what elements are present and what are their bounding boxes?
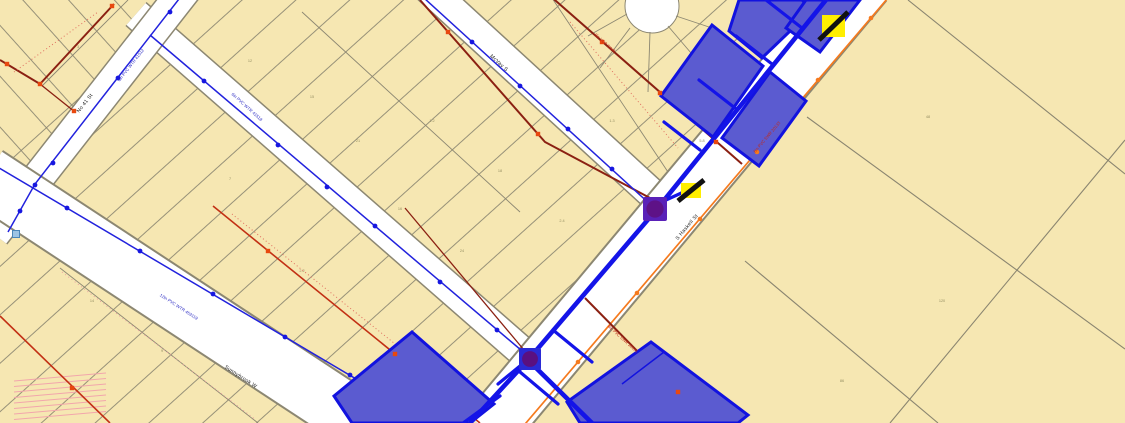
parcel-number: 24 xyxy=(460,249,464,253)
parcel-number: 16 xyxy=(398,207,402,211)
water-node[interactable] xyxy=(518,84,523,89)
water-node[interactable] xyxy=(610,167,615,172)
parcel-number: 15 xyxy=(310,95,314,99)
sewer-node[interactable] xyxy=(714,140,718,144)
water-node[interactable] xyxy=(138,249,143,254)
sewer-node[interactable] xyxy=(393,352,397,356)
water-node[interactable] xyxy=(65,206,70,211)
water-node[interactable] xyxy=(168,10,173,15)
map-canvas[interactable]: No 41 StMcVay SS Haskell StSunnybrook W1… xyxy=(0,0,1125,423)
parcel-number: 5.8 xyxy=(699,139,704,143)
flow-arrow-icon[interactable] xyxy=(635,291,640,296)
water-node[interactable] xyxy=(470,40,475,45)
sewer-node[interactable] xyxy=(70,386,74,390)
water-node[interactable] xyxy=(566,127,571,132)
sewer-node[interactable] xyxy=(5,62,9,66)
parcel-number: 14 xyxy=(90,299,94,303)
water-node[interactable] xyxy=(438,280,443,285)
water-node[interactable] xyxy=(211,292,216,297)
parcel-number: 7 xyxy=(229,177,231,181)
warning-marker-icon[interactable] xyxy=(819,12,848,40)
water-node[interactable] xyxy=(373,224,378,229)
water-node[interactable] xyxy=(348,373,353,378)
parcel-number: 9 xyxy=(161,349,163,353)
parcel-number: 2.2 xyxy=(299,269,304,273)
water-node[interactable] xyxy=(33,183,38,188)
water-node[interactable] xyxy=(325,185,330,190)
gis-map[interactable]: No 41 StMcVay SS Haskell StSunnybrook W1… xyxy=(0,0,1125,423)
parcel-number: 48 xyxy=(926,115,930,119)
warning-marker-icon[interactable] xyxy=(678,180,704,201)
parcel-number: 12 xyxy=(248,59,252,63)
flow-arrow-icon[interactable] xyxy=(576,360,581,365)
sewer-node[interactable] xyxy=(446,30,450,34)
flow-arrow-icon[interactable] xyxy=(869,16,874,21)
sewer-node[interactable] xyxy=(38,82,42,86)
water-node[interactable] xyxy=(495,328,500,333)
valve-marker-icon[interactable] xyxy=(519,348,541,370)
water-node[interactable] xyxy=(276,143,281,148)
parcel-number: 1.2 xyxy=(429,119,434,123)
sewer-node[interactable] xyxy=(536,132,540,136)
flow-arrow-icon[interactable] xyxy=(816,78,821,83)
sewer-node[interactable] xyxy=(676,390,680,394)
parcel-number: 3 xyxy=(77,45,79,49)
sewer-node[interactable] xyxy=(266,249,270,253)
water-node[interactable] xyxy=(283,335,288,340)
parcel-number: 86 xyxy=(840,379,844,383)
parcel-number: 120 xyxy=(939,299,945,303)
sewer-node[interactable] xyxy=(110,4,114,8)
parcel-number: 2.4 xyxy=(559,219,564,223)
water-node[interactable] xyxy=(18,209,23,214)
water-node[interactable] xyxy=(202,79,207,84)
parcel-number: 1.3 xyxy=(609,119,614,123)
water-node[interactable] xyxy=(51,161,56,166)
parcel-number: 21 xyxy=(356,139,360,143)
valve-marker-icon[interactable] xyxy=(643,197,667,221)
parcel-number: 18 xyxy=(498,169,502,173)
sewer-node[interactable] xyxy=(658,91,662,95)
hydrant-marker-icon[interactable] xyxy=(13,231,20,238)
